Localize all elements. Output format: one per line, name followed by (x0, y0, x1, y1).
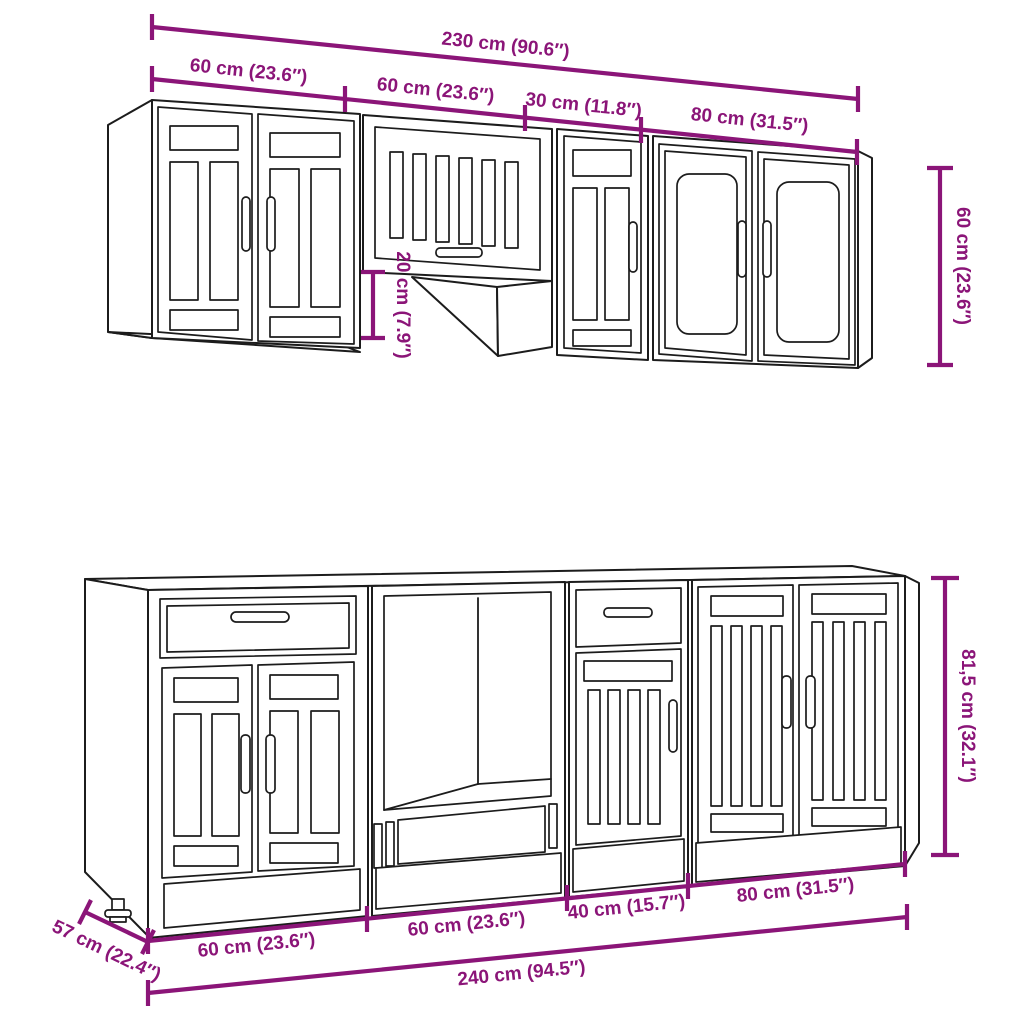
door-panel (210, 162, 238, 300)
door-handle (267, 197, 275, 251)
adjustable-foot (112, 899, 124, 910)
door-slat (711, 626, 722, 806)
door-panel (170, 126, 238, 150)
door-slat (648, 690, 660, 824)
door-handle (738, 221, 746, 277)
door-panel (212, 714, 239, 836)
door-slat (854, 622, 865, 800)
door-panel (270, 317, 340, 337)
door-handle (763, 221, 771, 277)
door-panel (270, 843, 338, 863)
door-slat (608, 690, 620, 824)
frame-stile (549, 804, 557, 848)
door-slat (459, 158, 472, 244)
door-handle (266, 735, 275, 793)
door-slat (751, 626, 762, 806)
door-slat (390, 152, 403, 238)
door-slat (482, 160, 495, 246)
hood-box-front (497, 281, 552, 356)
door-slat (436, 156, 449, 242)
base-cabinet-80 (692, 576, 919, 885)
door-panel (812, 594, 886, 614)
drawer-handle (231, 612, 289, 622)
base-cabinet-60-left (85, 579, 368, 938)
door-panel (812, 808, 886, 826)
door-panel (170, 162, 198, 300)
oven-cavity (384, 592, 551, 810)
adjustable-foot (105, 910, 131, 917)
door-slat (628, 690, 640, 824)
door-handle (782, 676, 791, 728)
product-dimension-image: 230 cm (90.6″) 60 cm (23.6″) 60 cm (23.6… (0, 0, 1024, 1024)
base-cabinet-40 (569, 580, 688, 897)
wall-cabinet-80 (653, 136, 872, 368)
door-panel (311, 169, 340, 307)
door-panel (573, 188, 597, 320)
kitchen-cabinet-dimension-diagram: 230 cm (90.6″) 60 cm (23.6″) 60 cm (23.6… (0, 0, 1024, 1024)
door-panel (711, 814, 783, 832)
door-panel (174, 714, 201, 836)
door-panel (174, 678, 238, 702)
door-panel (573, 150, 631, 176)
wall-cabinet-60-hood (363, 115, 552, 356)
dimension-line (931, 578, 959, 855)
door-glass-panel (677, 174, 737, 334)
door-glass-panel (777, 182, 839, 342)
door-handle (241, 735, 250, 793)
door-handle (242, 197, 250, 251)
dimension-label: 20 cm (7.9″) (392, 251, 413, 358)
door-handle (436, 248, 482, 257)
door-handle (629, 222, 637, 272)
dim-base-cabinet-height: 81,5 cm (32.1″) (931, 578, 978, 855)
door-slat (588, 690, 600, 824)
cabinet-side-sliver (905, 576, 919, 866)
wall-cabinet-30 (557, 129, 648, 360)
frame-stile (374, 824, 382, 868)
door-panel (174, 846, 238, 866)
cabinet-side-sliver (858, 151, 872, 368)
cabinet-side-panel (85, 579, 148, 936)
door-panel (711, 596, 783, 616)
drawer-handle (604, 608, 652, 617)
dimension-label: 30 cm (11.8″) (524, 89, 642, 122)
dimension-line (927, 168, 953, 365)
hood-box-side (412, 277, 498, 356)
dimension-label: 80 cm (31.5″) (690, 104, 809, 137)
door-panel (605, 188, 629, 320)
door-slat (731, 626, 742, 806)
wall-cabinet-60-left (108, 100, 360, 352)
door-handle (806, 676, 815, 728)
adjustable-foot (110, 917, 126, 922)
door-panel (584, 661, 672, 681)
drawer-face (167, 603, 349, 652)
door-panel (311, 711, 339, 833)
frame-stile (386, 822, 394, 866)
door-slat (833, 622, 844, 800)
dim-wall-cabinet-height: 60 cm (23.6″) (927, 168, 973, 365)
cabinet-side-panel (108, 100, 152, 338)
dimension-label: 60 cm (23.6″) (952, 207, 973, 325)
dimension-label: 81,5 cm (32.1″) (957, 649, 978, 783)
dimension-line (361, 272, 385, 338)
door-slat (413, 154, 426, 240)
door-handle (669, 700, 677, 752)
door-slat (875, 622, 886, 800)
door-slat (505, 162, 518, 248)
door-panel (170, 310, 238, 330)
door-panel (270, 133, 340, 157)
door-slat (771, 626, 782, 806)
base-cabinet-60-oven (372, 582, 565, 916)
door-panel (270, 675, 338, 699)
door-panel (573, 330, 631, 346)
